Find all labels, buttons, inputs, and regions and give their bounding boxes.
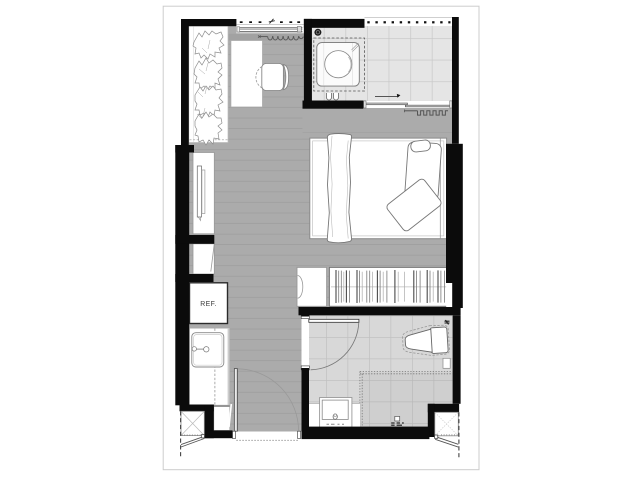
svg-text:REF.: REF. xyxy=(200,301,217,308)
